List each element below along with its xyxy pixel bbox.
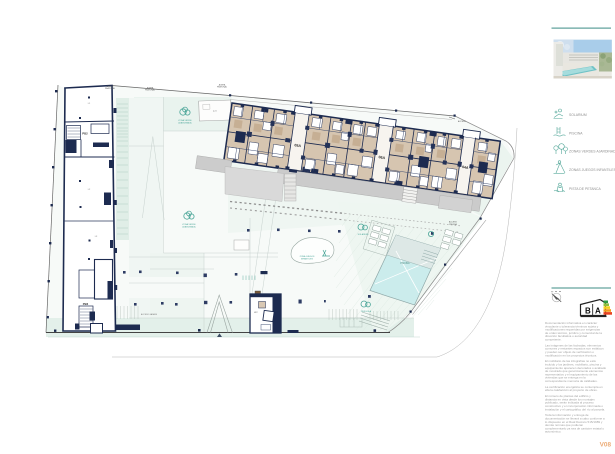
svg-text:autonómico.: autonómico.: [545, 430, 562, 434]
svg-text:PB3: PB3: [83, 302, 89, 306]
svg-text:correspondiente memoria de cal: correspondiente memoria de calidades.: [545, 379, 598, 383]
svg-text:ZONAS JUEGOS INFANTILES: ZONAS JUEGOS INFANTILES: [569, 168, 615, 172]
svg-text:PISCINA: PISCINA: [400, 262, 410, 265]
svg-text:PEATONAL: PEATONAL: [105, 87, 115, 90]
svg-text:B: B: [585, 307, 591, 316]
svg-text:ZONAS VERDES AJARDINADAS: ZONAS VERDES AJARDINADAS: [569, 150, 615, 154]
svg-text:PEATONAL: PEATONAL: [217, 86, 227, 89]
svg-text:competente.: competente.: [545, 338, 562, 342]
svg-text:SOLARIUM: SOLARIUM: [358, 233, 369, 236]
svg-text:AJARDINADA: AJARDINADA: [178, 122, 192, 125]
svg-text:PEATONAL: PEATONAL: [145, 89, 155, 92]
svg-text:C.T.: C.T.: [213, 110, 218, 113]
svg-text:WC: WC: [254, 312, 258, 314]
svg-text:PISCINA: PISCINA: [569, 132, 583, 136]
svg-text:SOLARIUM: SOLARIUM: [569, 113, 587, 117]
svg-text:V08: V08: [600, 442, 612, 449]
svg-text:ACCESO: ACCESO: [458, 120, 467, 123]
svg-text:PISCINA: PISCINA: [449, 223, 457, 226]
svg-text:ella la calefacción al proyect: ella la calefacción al proyecto de obras…: [545, 388, 598, 392]
svg-text:PB2: PB2: [82, 132, 88, 136]
svg-text:modificación en los proyectos: modificación en los proyectos técnicos.: [545, 353, 597, 357]
svg-text:ZONA VERDE: ZONA VERDE: [182, 223, 196, 226]
svg-text:INFANTILES: INFANTILES: [301, 258, 314, 261]
svg-text:AJARDINADA: AJARDINADA: [182, 226, 196, 229]
svg-text:ZONA VERDE: ZONA VERDE: [178, 119, 192, 122]
svg-text:PERGOLA: PERGOLA: [361, 310, 372, 313]
svg-text:PISTA DE PETANCA: PISTA DE PETANCA: [569, 187, 601, 191]
svg-text:ZONA JUEGOS: ZONA JUEGOS: [300, 255, 315, 258]
svg-text:instalación y el cartográfico: instalación y el cartográfico del río al…: [545, 407, 605, 411]
svg-text:ACCESO GARAJE: ACCESO GARAJE: [141, 313, 158, 316]
svg-text:A: A: [595, 307, 601, 316]
